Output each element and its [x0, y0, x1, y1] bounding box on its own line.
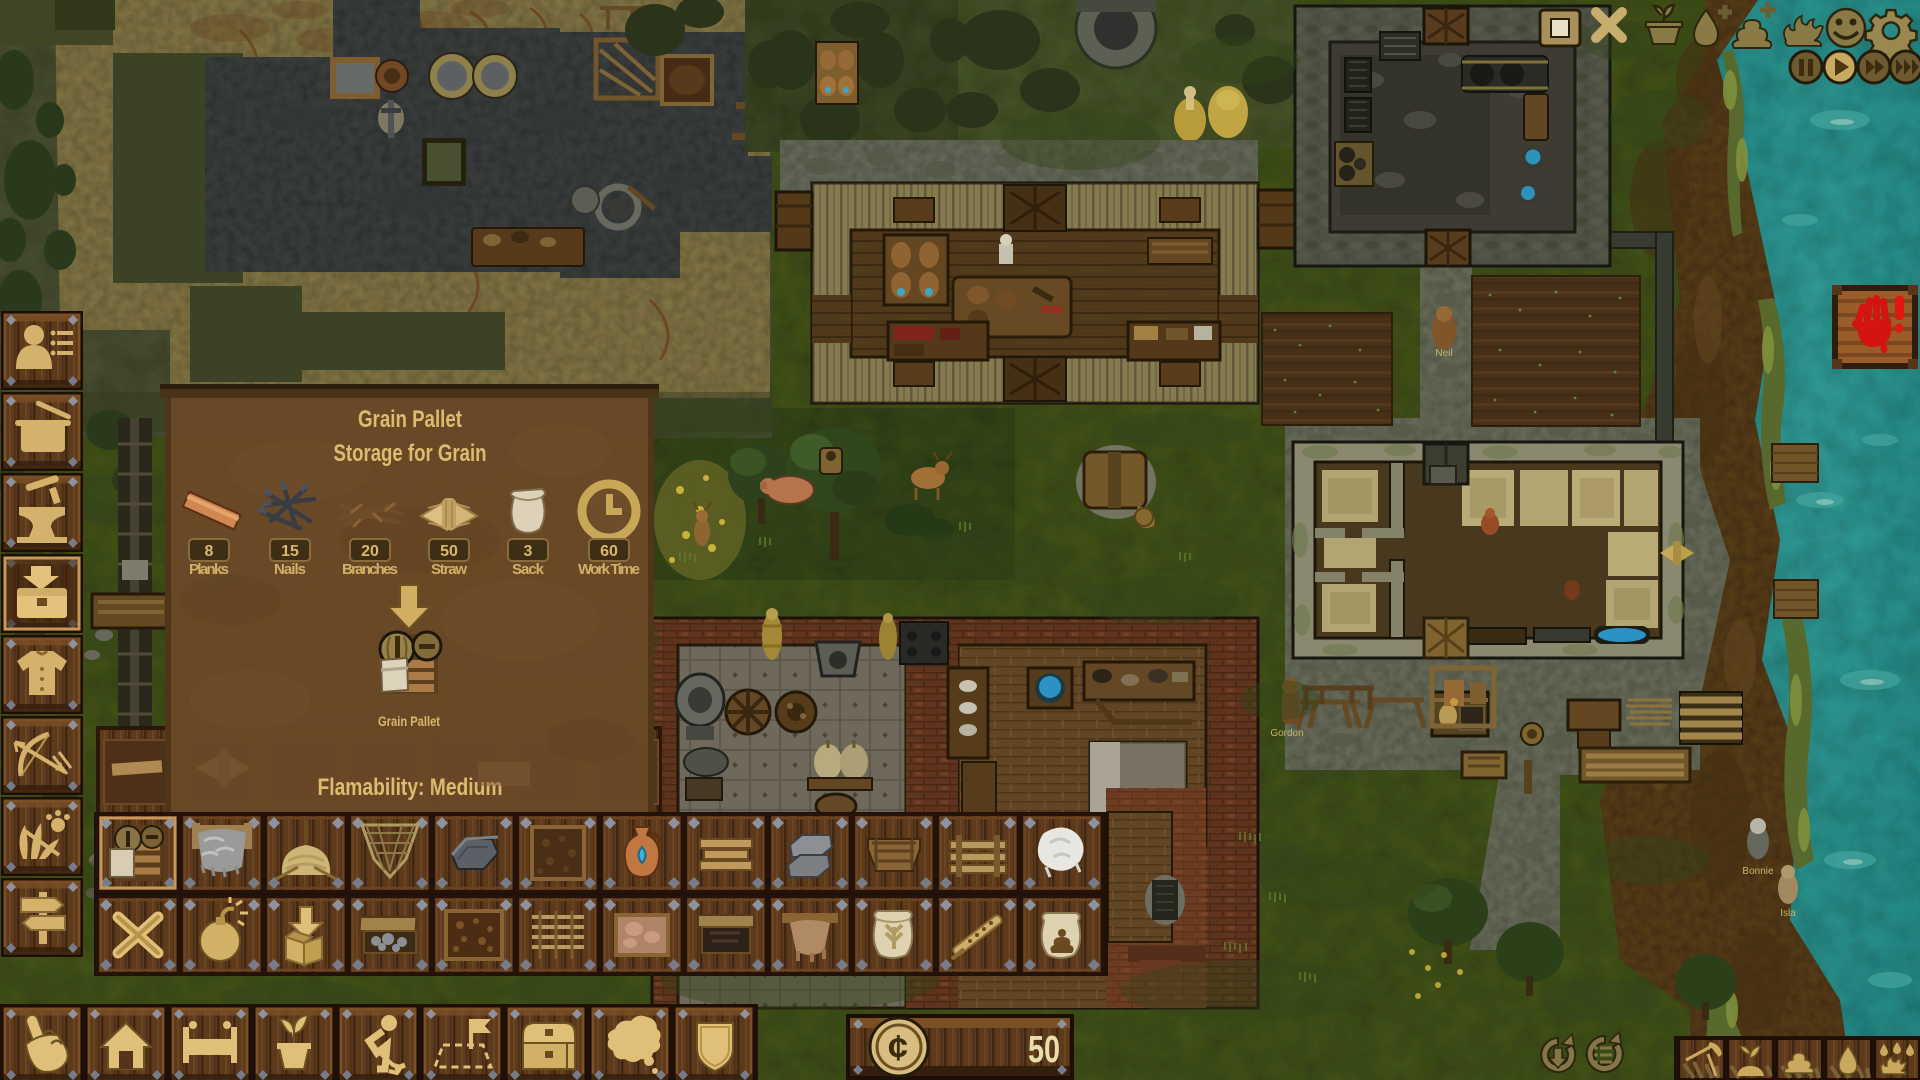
svg-text:Branches: Branches: [342, 561, 398, 578]
svg-text:¢: ¢: [888, 1027, 908, 1068]
svg-text:15: 15: [281, 543, 299, 560]
svg-text:Grain Pallet: Grain Pallet: [358, 406, 462, 433]
svg-text:Grain Pallet: Grain Pallet: [378, 713, 440, 729]
svg-text:8: 8: [205, 543, 214, 560]
svg-text:Planks: Planks: [189, 561, 229, 578]
svg-text:Straw: Straw: [431, 561, 467, 578]
svg-text:Storage for Grain: Storage for Grain: [334, 440, 487, 467]
svg-text:Nails: Nails: [274, 561, 306, 578]
svg-text:50: 50: [440, 543, 458, 560]
svg-text:20: 20: [361, 543, 379, 560]
svg-text:Work Time: Work Time: [578, 561, 640, 578]
svg-text:Flamability: Medium: Flamability: Medium: [318, 774, 503, 801]
svg-text:3: 3: [524, 543, 533, 560]
svg-text:50: 50: [1028, 1029, 1060, 1071]
svg-text:60: 60: [600, 543, 618, 560]
svg-text:Sack: Sack: [512, 561, 545, 578]
